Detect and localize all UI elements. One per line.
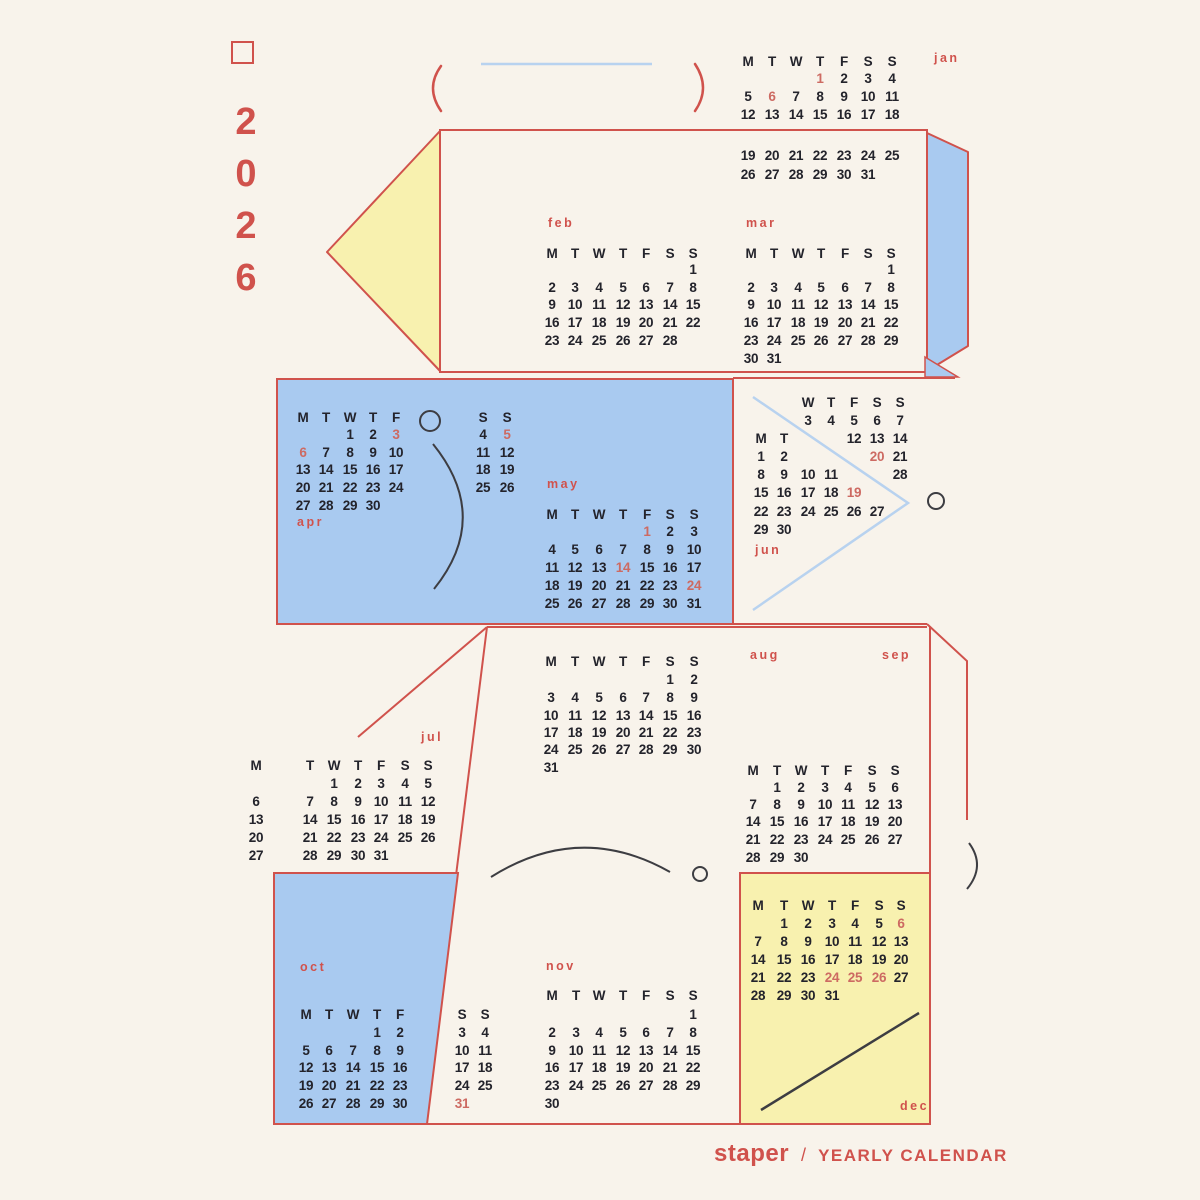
calendar-cell: W [795, 898, 821, 913]
calendar-cell: S [888, 898, 914, 913]
calendar-cell: M [745, 898, 771, 913]
calendar-cell: 14 [745, 952, 771, 967]
brand-footer: staper / YEARLY CALENDAR [714, 1140, 1008, 1168]
calendar-cell: 22 [771, 970, 797, 985]
calendar-cell: 30 [795, 988, 821, 1003]
calendar-cell: 31 [819, 988, 845, 1003]
calendar-cell: 7 [745, 934, 771, 949]
calendar-cell: 2 [795, 916, 821, 931]
calendar-poster: 2026 janMTWTFSS1234567891011121314151617… [0, 0, 1200, 1200]
calendar-cell: 16 [795, 952, 821, 967]
calendar-cell: 8 [771, 934, 797, 949]
calendar-cell: 9 [795, 934, 821, 949]
calendar-cell: 25 [842, 970, 868, 985]
month-dec: decMTWTFSS123456789101112131415161718192… [0, 0, 1200, 1200]
calendar-cell: 11 [842, 934, 868, 949]
calendar-cell: 29 [771, 988, 797, 1003]
calendar-cell: 4 [842, 916, 868, 931]
poster-title: YEARLY CALENDAR [818, 1146, 1008, 1166]
calendar-cell: 15 [771, 952, 797, 967]
brand-name: staper [714, 1140, 789, 1168]
calendar-cell: 1 [771, 916, 797, 931]
calendar-cell: 23 [795, 970, 821, 985]
calendar-cell: 21 [745, 970, 771, 985]
calendar-cell: 27 [888, 970, 914, 985]
months-layer: janMTWTFSS123456789101112131415161718192… [0, 0, 1200, 1200]
calendar-cell: F [842, 898, 868, 913]
calendar-cell: 13 [888, 934, 914, 949]
calendar-cell: 6 [888, 916, 914, 931]
brand-separator: / [801, 1145, 806, 1166]
calendar-cell: T [771, 898, 797, 913]
month-label-dec: dec [900, 1099, 929, 1113]
calendar-cell: 28 [745, 988, 771, 1003]
calendar-cell: 18 [842, 952, 868, 967]
calendar-cell: 20 [888, 952, 914, 967]
